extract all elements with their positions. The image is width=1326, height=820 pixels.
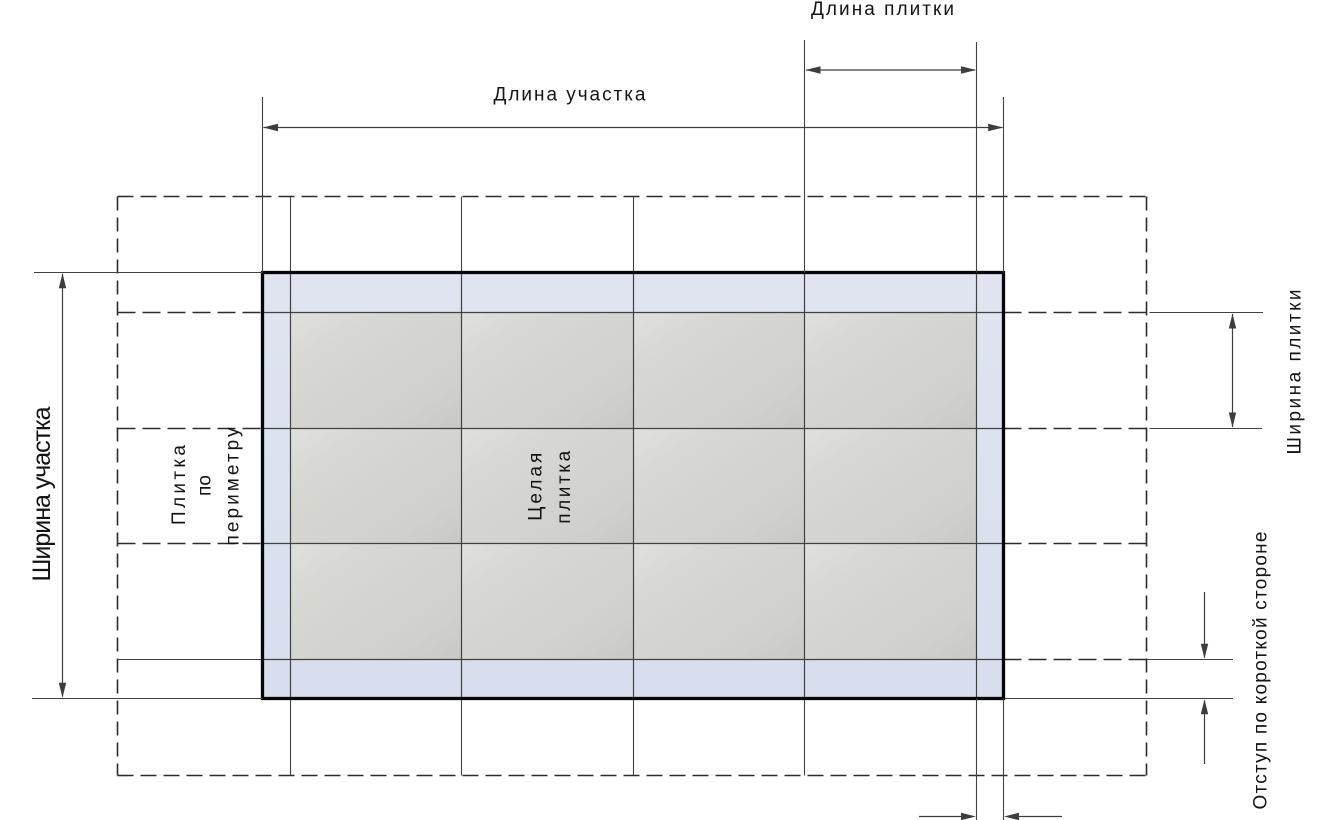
svg-text:Ширина участка: Ширина участка bbox=[28, 406, 56, 581]
svg-text:Целая: Целая bbox=[526, 453, 547, 521]
svg-text:по: по bbox=[195, 475, 216, 496]
svg-text:Отступ по короткой стороне: Отступ по короткой стороне bbox=[1251, 532, 1272, 810]
svg-text:периметру: периметру bbox=[223, 427, 244, 546]
svg-text:Ширина плитки: Ширина плитки bbox=[1285, 290, 1306, 455]
